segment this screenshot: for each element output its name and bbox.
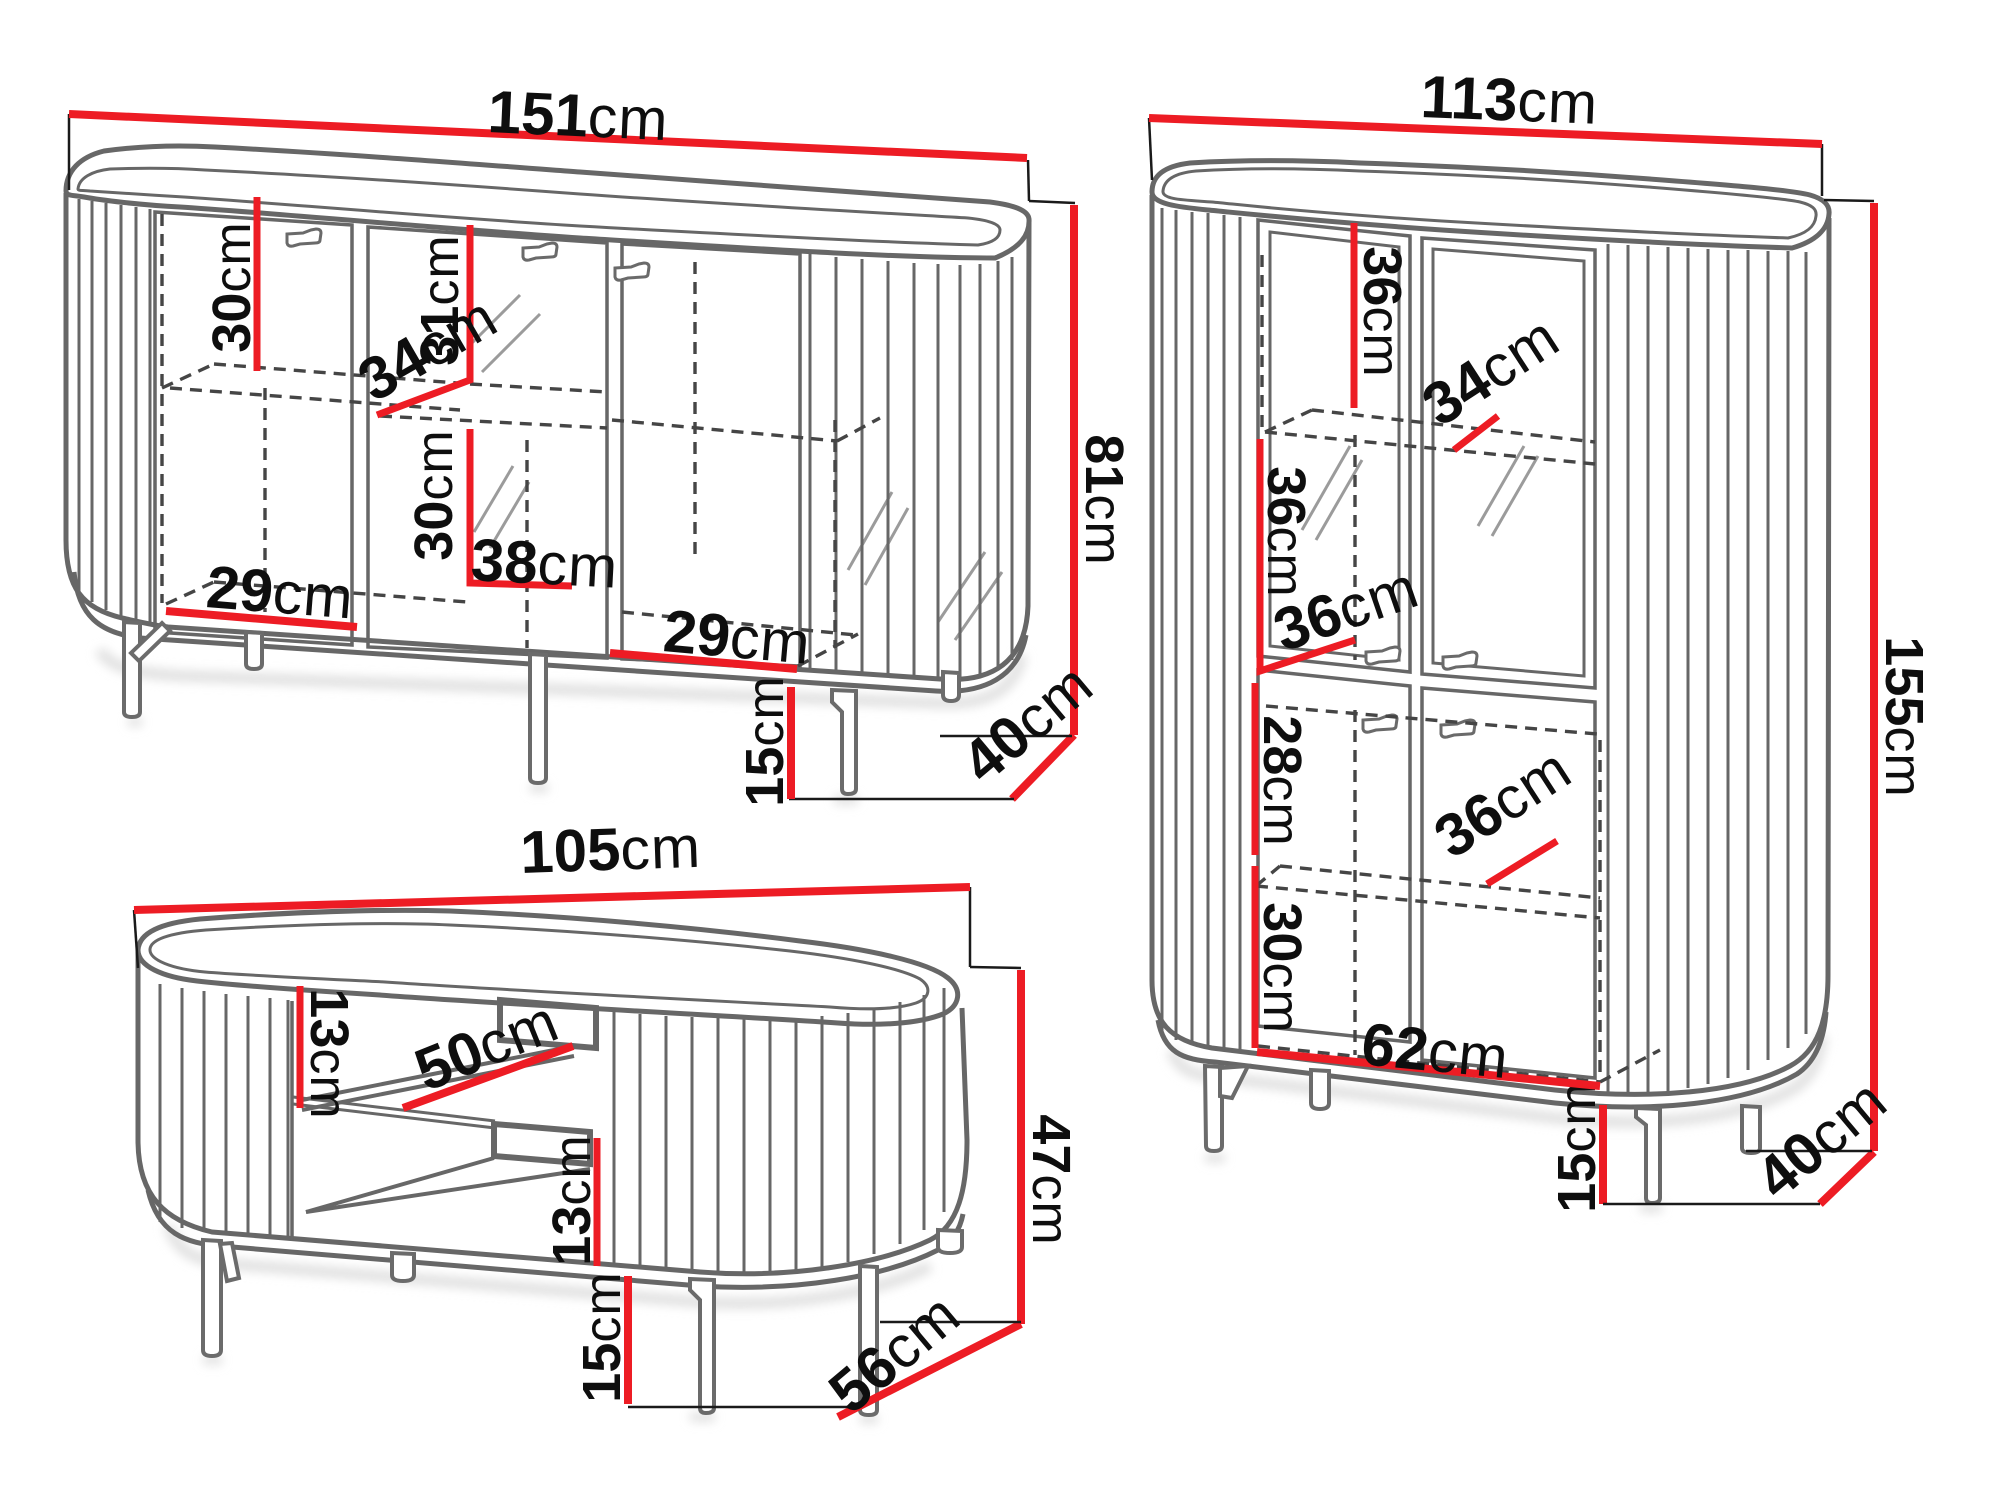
svg-text:30cm: 30cm: [202, 221, 262, 352]
svg-text:29cm: 29cm: [204, 553, 356, 631]
svg-text:13cm: 13cm: [299, 988, 359, 1119]
svg-text:105cm: 105cm: [519, 813, 702, 886]
svg-text:81cm: 81cm: [1074, 434, 1134, 565]
svg-text:15cm: 15cm: [735, 675, 795, 806]
svg-text:13cm: 13cm: [542, 1134, 602, 1265]
svg-text:36cm: 36cm: [1256, 466, 1316, 597]
svg-text:38cm: 38cm: [469, 526, 620, 601]
svg-text:47cm: 47cm: [1021, 1114, 1081, 1245]
svg-text:62cm: 62cm: [1359, 1010, 1512, 1091]
svg-text:113cm: 113cm: [1420, 63, 1600, 137]
svg-text:28cm: 28cm: [1252, 715, 1312, 846]
svg-text:30cm: 30cm: [1252, 902, 1312, 1033]
svg-text:36cm: 36cm: [1352, 246, 1412, 377]
svg-text:15cm: 15cm: [572, 1271, 632, 1402]
svg-text:29cm: 29cm: [661, 597, 814, 677]
svg-text:30cm: 30cm: [404, 429, 464, 560]
svg-text:151cm: 151cm: [486, 78, 670, 153]
svg-text:15cm: 15cm: [1547, 1081, 1607, 1212]
svg-text:155cm: 155cm: [1874, 636, 1934, 797]
